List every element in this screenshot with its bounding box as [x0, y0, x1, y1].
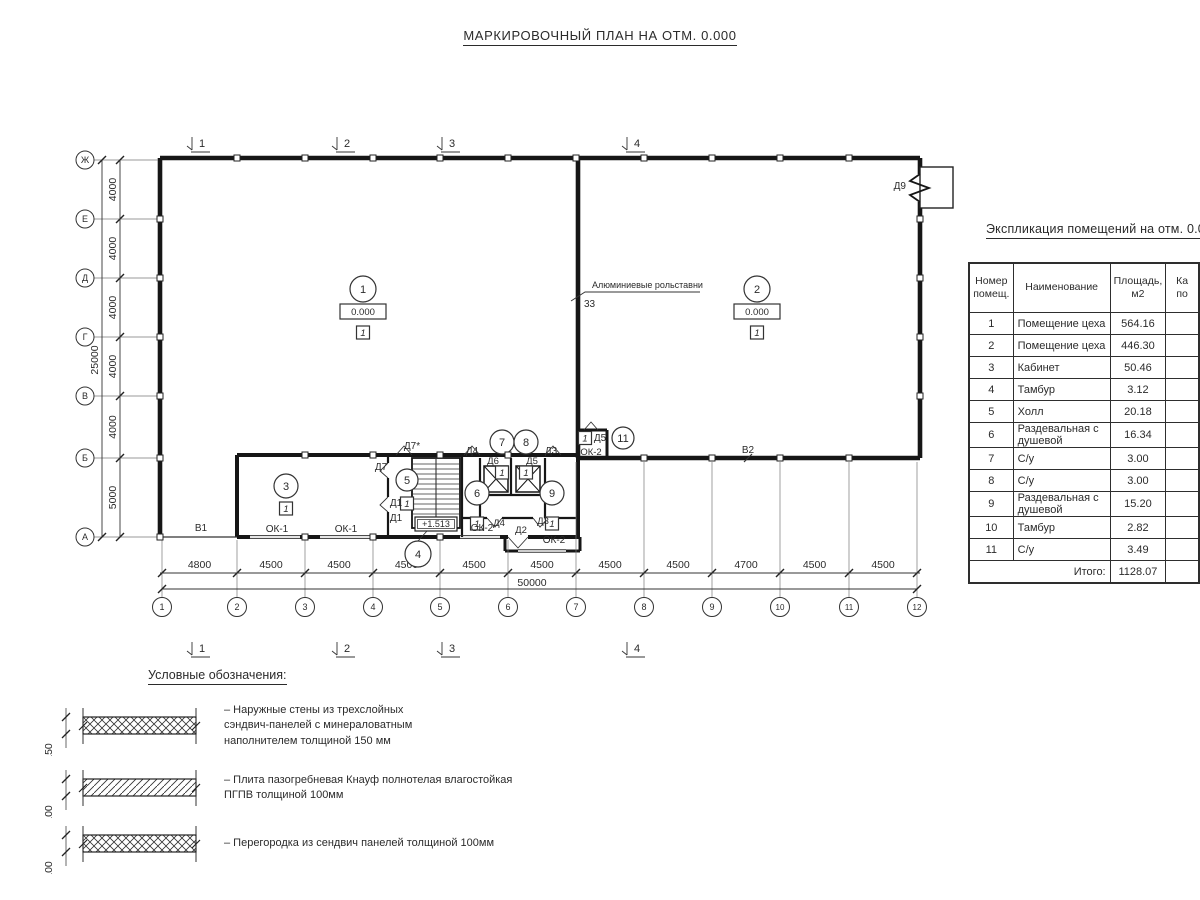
schedule-title: Экспликация помещений на отм. 0.000 [986, 222, 1200, 239]
plan-label: В1 [195, 523, 208, 534]
schedule-cell: 3.00 [1110, 470, 1166, 492]
column-square [846, 455, 852, 461]
schedule-cell: 11 [969, 539, 1013, 561]
room-number: 6 [474, 488, 480, 500]
schedule-header-row: Номер помещ. Наименование Площадь, м2 Ка… [969, 263, 1199, 313]
schedule-cell: 5 [969, 401, 1013, 423]
schedule-cell: 2 [969, 335, 1013, 357]
schedule-cell: Тамбур [1013, 517, 1110, 539]
axis-col-label: 5 [437, 602, 442, 612]
plan-label: Д2 [515, 525, 527, 536]
schedule-cell: Раздевальная с душевой [1013, 423, 1110, 448]
schedule-cell: 6 [969, 423, 1013, 448]
schedule-cell: 8 [969, 470, 1013, 492]
column-square [234, 155, 240, 161]
legend-item-partition: 100 – Перегородка из сендвич панелей тол… [38, 814, 494, 874]
column-square [641, 455, 647, 461]
svg-text:1: 1 [549, 519, 554, 530]
schedule-row: 5Холл20.18 [969, 401, 1199, 423]
axis-row-label: Д [82, 273, 88, 283]
room-number: 4 [415, 549, 421, 561]
plan-label: ОК-2 [471, 523, 494, 534]
schedule-cell: С/у [1013, 539, 1110, 561]
hatch-swatch-diagonal: 100 [38, 758, 218, 818]
axis-col-label: 2 [234, 602, 239, 612]
hatch-swatch-crosshatch: 100 [38, 814, 218, 874]
axis-col-label: 1 [159, 602, 164, 612]
schedule-cell: С/у [1013, 470, 1110, 492]
schedule-cell: 3 [969, 357, 1013, 379]
schedule-cell [1166, 401, 1199, 423]
column-square [302, 155, 308, 161]
column-square [777, 455, 783, 461]
column-square [709, 455, 715, 461]
axis-col-label: 12 [913, 603, 922, 612]
schedule-cell [1166, 423, 1199, 448]
schedule-cell [1166, 379, 1199, 401]
room-schedule-table: Номер помещ. Наименование Площадь, м2 Ка… [968, 262, 1200, 584]
svg-text:1: 1 [523, 468, 528, 479]
stair-elevation: +1.513 [422, 519, 450, 529]
dim-label: 4000 [107, 296, 119, 320]
column-square [917, 275, 923, 281]
axis-row-label: В [82, 391, 88, 401]
column-square [157, 275, 163, 281]
plan-label: Д6 [487, 456, 499, 467]
stair: +1.513 [412, 458, 460, 531]
svg-text:1: 1 [360, 328, 365, 339]
schedule-cell [1166, 335, 1199, 357]
schedule-cell [1166, 357, 1199, 379]
axis-col-label: 9 [709, 602, 714, 612]
svg-text:1: 1 [404, 499, 409, 510]
schedule-cell: Помещение цеха [1013, 313, 1110, 335]
plan-label: Д5 [526, 456, 538, 467]
dim-label: 4500 [803, 559, 827, 571]
column-square [157, 455, 163, 461]
schedule-cell: 15.20 [1110, 492, 1166, 517]
room-number: 1 [360, 284, 366, 296]
legend-item-outer-wall: 150 – Наружные стены из трехслойных сэнд… [38, 696, 412, 756]
dim-label: 4000 [107, 178, 119, 202]
schedule-cell: 4 [969, 379, 1013, 401]
schedule-cell: 50.46 [1110, 357, 1166, 379]
room-number: 5 [404, 475, 410, 487]
schedule-row: 8С/у3.00 [969, 470, 1199, 492]
legend-thickness-3: 100 [43, 861, 55, 874]
total-value: 1128.07 [1110, 561, 1166, 584]
axis-row-label: Ж [81, 155, 90, 165]
schedule-cell: 9 [969, 492, 1013, 517]
axis-row-label: Г [83, 332, 88, 342]
schedule-cell: 10 [969, 517, 1013, 539]
section-marker-label: 2 [344, 138, 350, 150]
column-square [302, 452, 308, 458]
axis-col-label: 10 [776, 603, 785, 612]
column-square [777, 155, 783, 161]
column-square [302, 534, 308, 540]
section-marker-label: 3 [449, 643, 455, 655]
dim-label: 4800 [188, 559, 212, 571]
d9-vestibule [920, 167, 953, 208]
room-number: 9 [549, 488, 555, 500]
column-square [709, 155, 715, 161]
schedule-cell [1166, 561, 1199, 584]
schedule-cell: Помещение цеха [1013, 335, 1110, 357]
schedule-row: 3Кабинет50.46 [969, 357, 1199, 379]
schedule-cell: 7 [969, 448, 1013, 470]
axis-col-label: 8 [641, 602, 646, 612]
schedule-cell [1166, 448, 1199, 470]
schedule-cell [1166, 313, 1199, 335]
column-square [157, 534, 163, 540]
dim-total-label: 50000 [517, 577, 546, 589]
plan-label: Алюминиевые рольставни [592, 280, 703, 290]
column-square [370, 534, 376, 540]
legend-text-1: – Наружные стены из трехслойных сэндвич-… [224, 703, 412, 749]
plan-label: Д3 [537, 516, 549, 527]
legend-title: Условные обозначения: [148, 668, 287, 685]
column-square [437, 155, 443, 161]
dim-label: 4500 [871, 559, 895, 571]
room-number: 3 [283, 481, 289, 493]
plan-label: Д1 [390, 498, 403, 509]
schedule-cell: 16.34 [1110, 423, 1166, 448]
column-square [573, 155, 579, 161]
column-square [437, 452, 443, 458]
col-header-number: Номер помещ. [969, 263, 1013, 313]
schedule-cell: 20.18 [1110, 401, 1166, 423]
plan-label: ОК-1 [335, 524, 358, 535]
plan-label: ОК-2 [543, 535, 566, 546]
schedule-row: 2Помещение цеха446.30 [969, 335, 1199, 357]
drawing-sheet: МАРКИРОВОЧНЫЙ ПЛАН НА ОТМ. 0.000 [0, 0, 1200, 900]
dim-label: 4500 [598, 559, 622, 571]
schedule-row: 11С/у3.49 [969, 539, 1199, 561]
column-square [370, 452, 376, 458]
section-marker-label: 1 [199, 138, 205, 150]
col-header-category: Ка по [1166, 263, 1199, 313]
svg-text:1: 1 [754, 328, 759, 339]
dim-label: 4700 [734, 559, 758, 571]
section-marker-label: 4 [634, 643, 640, 655]
section-marker-label: 1 [199, 643, 205, 655]
room-number: 11 [617, 433, 628, 445]
svg-text:0.000: 0.000 [745, 307, 769, 318]
axis-col-label: 4 [370, 602, 375, 612]
schedule-row: 7С/у3.00 [969, 448, 1199, 470]
column-square [917, 216, 923, 222]
dim-label: 4500 [259, 559, 283, 571]
schedule-row: 10Тамбур2.82 [969, 517, 1199, 539]
schedule-row: 6Раздевальная с душевой16.34 [969, 423, 1199, 448]
schedule-cell: Холл [1013, 401, 1110, 423]
schedule-cell: Тамбур [1013, 379, 1110, 401]
plan-label: Д9 [894, 181, 907, 192]
axis-row-label: Б [82, 453, 88, 463]
schedule-cell: 2.82 [1110, 517, 1166, 539]
axis-col-label: 3 [302, 602, 307, 612]
col-header-area: Площадь, м2 [1110, 263, 1166, 313]
column-square [505, 155, 511, 161]
legend-item-knauf-slab: 100 – Плита пазогребневая Кнауф полнотел… [38, 758, 512, 818]
schedule-cell: 3.49 [1110, 539, 1166, 561]
column-square [917, 393, 923, 399]
plan-label: ОК-2 [580, 447, 601, 458]
col-header-name: Наименование [1013, 263, 1110, 313]
plan-label: Д5 [594, 433, 607, 444]
column-square [846, 155, 852, 161]
schedule-row: 9Раздевальная с душевой15.20 [969, 492, 1199, 517]
plan-label: Д4 [493, 518, 505, 529]
dim-label: 4500 [530, 559, 554, 571]
dim-total-label: 25000 [89, 345, 101, 374]
column-square [437, 534, 443, 540]
plan-label: Д1 [390, 513, 403, 524]
dim-label: 4000 [107, 415, 119, 439]
axis-row-label: Е [82, 214, 88, 224]
svg-text:0.000: 0.000 [351, 307, 375, 318]
plan-label: ОК-1 [266, 524, 289, 535]
section-marker-label: 2 [344, 643, 350, 655]
schedule-cell [1166, 539, 1199, 561]
plan-label: Д3 [545, 446, 558, 457]
dim-label: 4500 [666, 559, 690, 571]
column-square [157, 393, 163, 399]
schedule-row: 4Тамбур3.12 [969, 379, 1199, 401]
schedule-cell: 446.30 [1110, 335, 1166, 357]
schedule-cell: Кабинет [1013, 357, 1110, 379]
legend-text-2: – Плита пазогребневая Кнауф полнотелая в… [224, 773, 512, 804]
schedule-cell: Раздевальная с душевой [1013, 492, 1110, 517]
schedule-cell: 1 [969, 313, 1013, 335]
annotations-layer: ЖЕДГВБА400040004000400040005000250001234… [76, 137, 927, 657]
svg-text:1: 1 [499, 468, 504, 479]
schedule-cell: 3.00 [1110, 448, 1166, 470]
plan-label: 33 [584, 299, 596, 310]
dim-label: 4500 [462, 559, 486, 571]
plan-label: Д7* [404, 441, 420, 452]
legend-text-3: – Перегородка из сендвич панелей толщино… [224, 836, 494, 851]
total-label: Итого: [969, 561, 1110, 584]
schedule-cell [1166, 517, 1199, 539]
plan-label: Д4 [466, 446, 479, 457]
column-square [505, 452, 511, 458]
hatch-swatch-crosshatch: 150 [38, 696, 218, 756]
column-square [917, 334, 923, 340]
schedule-cell: С/у [1013, 448, 1110, 470]
section-marker-label: 4 [634, 138, 640, 150]
axis-row-label: А [82, 532, 88, 542]
dim-label: 4000 [107, 237, 119, 261]
dim-label: 4500 [327, 559, 351, 571]
schedule-total-row: Итого:1128.07 [969, 561, 1199, 584]
dim-label: 5000 [107, 486, 119, 510]
column-square [157, 216, 163, 222]
section-marker-label: 3 [449, 138, 455, 150]
plan-label: Д7 [375, 462, 388, 473]
legend-thickness-1: 150 [43, 743, 55, 756]
room-number: 2 [754, 284, 760, 296]
room-number: 8 [523, 437, 529, 449]
dim-label: 4000 [107, 355, 119, 379]
column-square [157, 334, 163, 340]
schedule-cell [1166, 492, 1199, 517]
svg-text:1: 1 [283, 504, 288, 515]
column-square [370, 155, 376, 161]
schedule-cell: 564.16 [1110, 313, 1166, 335]
room-number: 7 [499, 437, 505, 449]
schedule-row: 1Помещение цеха564.16 [969, 313, 1199, 335]
axis-col-label: 6 [505, 602, 510, 612]
column-square [641, 155, 647, 161]
axis-col-label: 7 [573, 602, 578, 612]
svg-text:1: 1 [582, 434, 587, 445]
schedule-cell: 3.12 [1110, 379, 1166, 401]
axis-col-label: 11 [845, 603, 854, 612]
plan-label: В2 [742, 445, 755, 456]
schedule-cell [1166, 470, 1199, 492]
